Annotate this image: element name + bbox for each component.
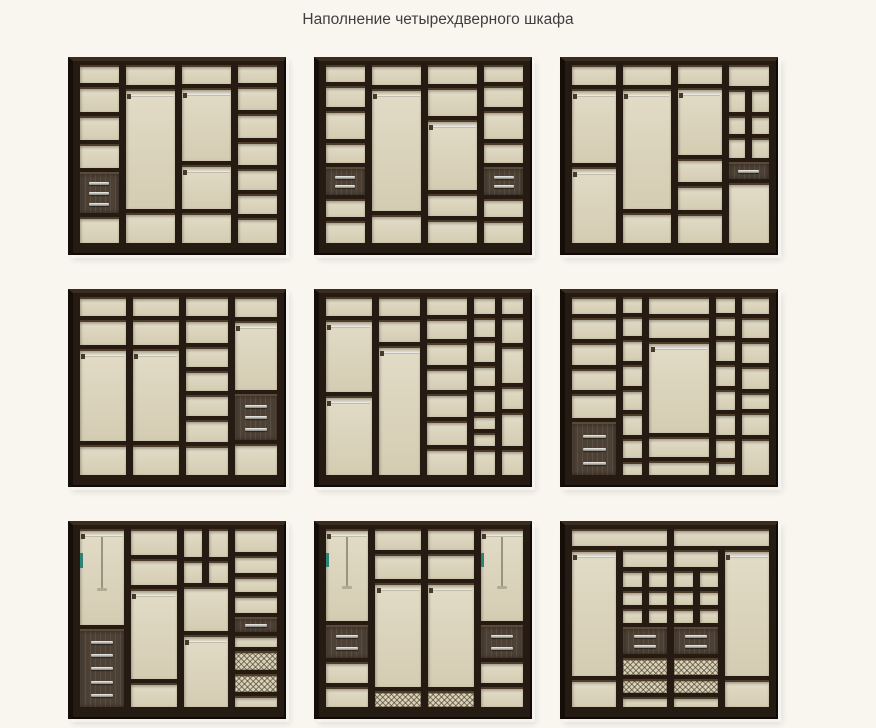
compartment-hanging [678,90,722,155]
wardrobe-sections [326,531,523,707]
wire-basket-shelf [623,681,667,693]
shelf-row [326,67,365,82]
compartment-shelf [678,67,722,84]
compartment-shelf [729,118,746,134]
compartment-shelf [623,215,671,243]
compartment-shelf [326,67,365,82]
compartment-shelf [742,320,769,338]
compartment-shelf [716,367,735,386]
compartment-shelf [427,371,467,391]
drawer-handle-icon [494,185,514,188]
shelf-row [186,397,228,417]
shelf-row [481,664,523,682]
compartment-shelf [474,320,495,337]
compartment-shelf [428,196,477,216]
shelf-row [729,118,769,134]
compartment-shelf [427,396,467,417]
shelf-row [235,676,277,692]
compartment-shelf [326,201,365,218]
shelf-row [729,185,769,243]
shelf-row [729,67,769,86]
compartment-shelf [379,299,421,316]
shelf-row [623,573,667,587]
compartment-shelf [729,140,746,158]
hanging-rod-icon [429,126,475,128]
wardrobe-column [729,67,769,243]
compartment-shelf [238,196,277,215]
shelf-row [649,299,709,314]
compartment-shelf [427,451,467,475]
shelf-row [474,343,495,361]
shelf-row [326,223,365,243]
shelf-row [623,299,642,313]
shelf-row [502,452,523,475]
shelf-row [238,67,277,83]
compartment-shelf [481,689,523,707]
shelf-row [474,392,495,412]
wardrobe-column [572,299,616,475]
compartment-shelf [131,685,177,707]
compartment-hanging [326,398,372,475]
hanging-rod-icon [573,173,614,175]
wardrobe-column [428,531,474,707]
shelf-row [623,681,667,693]
shelf-row [716,299,735,313]
shelf-row [235,698,277,707]
shelf-row [649,463,709,475]
compartment-shelf [428,531,474,550]
wardrobe-layout-8 [314,521,532,719]
hanging-rod-icon [327,326,370,328]
shelf-row [326,627,368,659]
compartment-shelf [238,220,277,243]
compartment-shelf [209,563,228,582]
shelf-row [184,637,228,707]
compartment-shelf [742,415,769,435]
compartment-shelf [372,217,421,243]
compartment-shelf [379,322,421,342]
shelf-row [742,441,769,475]
compartment-shelf [326,88,365,106]
compartment-shelf [572,682,616,707]
shelf-row [80,322,126,344]
drawer-handle-icon [245,405,267,408]
wardrobe-column [678,67,722,243]
shelf-row [623,593,667,605]
compartment-shelf [649,463,709,475]
wardrobe-sections [80,67,277,243]
shelf-row [126,215,175,243]
shelf-row [572,682,616,707]
compartment-shelf [729,67,769,86]
wardrobe-column [379,299,421,475]
compartment-hanging [184,637,228,707]
wardrobe-column [131,531,177,707]
compartment-shelf [484,88,523,106]
compartment-shelf [484,223,523,243]
shelf-row [184,589,228,631]
compartment-shelf [474,299,495,314]
compartment-shelf [235,598,277,613]
compartment-shelf [623,319,642,336]
wardrobe-column [649,299,709,475]
shelf-row [131,591,177,679]
shelf-row [372,91,421,211]
wardrobe-layout-9 [560,521,778,719]
hanging-rod-icon [380,352,419,354]
compartment-shelf [623,573,642,587]
wardrobe-column [716,299,735,475]
wire-basket-shelf [674,681,718,693]
drawer-handle-icon [583,448,606,451]
compartment-shelf [80,299,126,316]
shelf-row [186,448,228,475]
compartment-shelf [238,89,277,110]
shelf-row [742,415,769,435]
shelf-row [186,373,228,391]
shelf-row [725,682,769,707]
compartment-shelf [623,392,642,411]
shelf-row [474,435,495,446]
hanging-rod-icon [183,94,229,96]
shelf-row [133,351,179,441]
shelf-row [678,90,722,155]
wardrobe-column [481,531,523,707]
wardrobe-sections [80,299,277,475]
drawer-handle-icon [245,624,267,627]
shelf-row [80,67,119,83]
compartment-hanging [372,91,421,211]
compartment-shelf [474,343,495,361]
compartment-shelf [502,349,523,383]
compartment-shelf [427,299,467,315]
hanging-rod-icon [185,641,226,643]
shelf-row [372,217,421,243]
shelf-row [649,320,709,338]
wardrobe-column [326,299,372,475]
shelf-row [80,631,124,708]
shelf-row [186,322,228,343]
compartment-shelf [623,611,642,623]
shelf-row [235,638,277,647]
compartment-shelf [623,699,667,707]
shelf-row [428,67,477,84]
shelf-row [572,371,616,390]
compartment-shelf [674,552,718,567]
drawer-unit [481,627,523,659]
shelf-row [326,145,365,163]
shelf-row [182,167,231,208]
drawer-unit [326,169,365,194]
wardrobe-layout-7 [68,521,286,719]
compartment-hanging [428,122,477,190]
shelf-row [742,320,769,338]
drawer-handle-icon [91,654,114,657]
compartment-shelf [502,415,523,446]
compartment-shelf [182,215,231,243]
drawer-handle-icon [91,641,114,644]
compartment-shelf [716,342,735,361]
shelf-row [678,161,722,182]
shelf-row [427,345,467,365]
shelf-row [428,90,477,116]
shelf-row [742,369,769,389]
shelf-row [326,398,372,475]
compartment-shelf [126,215,175,243]
shelf-row [428,556,474,579]
compartment-shelf [623,367,642,386]
compartment-shelf [623,593,642,605]
shelf-row [674,611,718,623]
hanging-rod-icon [132,595,175,597]
shelf-row [80,531,124,625]
shelf-row [80,219,119,243]
shelf-row [484,145,523,163]
shelf-row [742,395,769,410]
wardrobe-column [502,299,523,475]
compartment-shelf [474,368,495,386]
compartment-shelf [80,322,126,344]
shelf-row [742,299,769,314]
shelf-row [375,556,421,579]
compartment-shelf [133,447,179,475]
wardrobe-column [428,67,477,243]
compartment-hanging [80,351,126,441]
drawer-handle-icon [245,428,267,431]
compartment-shelf [729,185,769,243]
shelf-row [235,396,277,441]
compartment-hanging [572,169,616,243]
drawer-handle-icon [336,635,358,638]
wardrobe-column [184,531,228,707]
compartment-hanging [379,348,421,475]
wardrobe-column [742,299,769,475]
compartment-shelf [427,345,467,365]
drawer-handle-icon [685,635,708,638]
shelf-row [572,169,616,243]
compartment-shelf [674,531,769,546]
compartment-shelf [502,389,523,409]
hanging-rod-icon [429,589,472,591]
compartment-hanging [623,91,671,209]
shelf-row [133,299,179,316]
compartment-shelf [700,611,719,623]
drawer-handle-icon [494,176,514,179]
drawer-handle-icon [91,694,114,697]
drawer-handle-icon [89,182,109,185]
drawer-handle-icon [583,462,606,465]
compartment-shelf [80,447,126,475]
drawer-handle-icon [583,435,606,438]
compartment-hanging [326,322,372,392]
drawer-handle-icon [335,185,355,188]
wardrobe-sections [326,67,523,243]
shelf-row [235,653,277,669]
wardrobe-column [623,552,667,707]
compartment-shelf [326,223,365,243]
shelf-row [678,67,722,84]
compartment-shelf [572,531,667,546]
shelf-row [182,67,231,84]
wire-basket-shelf [235,653,277,669]
compartment-shelf [427,423,467,444]
compartment-shelf [678,161,722,182]
drawer-handle-icon [91,681,114,684]
shelf-row [623,441,642,458]
hook-accent-icon [326,553,329,567]
shelf-row [474,299,495,314]
compartment-shelf [623,441,642,458]
pantograph-rod-icon [501,537,503,586]
wire-basket-shelf [235,676,277,692]
compartment-shelf [716,464,735,475]
shelf-row [131,531,177,555]
compartment-shelf [235,531,277,552]
hanging-rod-icon [624,95,669,97]
shelf-row [572,552,616,676]
shelf-row [623,67,671,85]
wardrobe-column [80,67,119,243]
wardrobe-column [186,299,228,475]
compartment-shelf [752,140,769,158]
drawer-unit [326,627,368,659]
shelf-row [80,351,126,441]
drawer-handle-icon [738,170,759,173]
hanging-rod-icon [134,355,177,357]
compartment-shelf [131,561,177,585]
shelf-row [80,118,119,140]
compartment-shelf [186,448,228,475]
compartment-shelf [725,682,769,707]
shelf-row [484,67,523,82]
compartment-shelf [184,589,228,631]
shelf-row [238,89,277,110]
hanging-rod-icon [726,556,767,558]
compartment-shelf [623,416,642,435]
wardrobe-sections [572,299,769,475]
shelf-row [623,552,667,567]
shelf-row [326,664,368,682]
compartment-shelf [428,67,477,84]
compartment-hanging [428,585,474,687]
compartment-shelf [428,222,477,243]
hanging-rod-icon [127,95,173,97]
wire-basket-shelf [428,693,474,707]
drawer-unit [729,164,769,179]
wardrobe-column [80,299,126,475]
shelf-row [572,345,616,365]
compartment-shelf [674,611,693,623]
wardrobe-layout-1 [68,57,286,255]
compartment-shelf [235,558,277,573]
compartment-shelf [80,67,119,83]
wardrobe-layout-5 [314,289,532,487]
shelf-row [80,299,126,316]
shelf-row [184,531,228,557]
shelf-row [131,561,177,585]
drawer-handle-icon [634,635,657,638]
shelf-row [238,116,277,137]
compartment-shelf [678,216,722,243]
shelf-row [372,67,421,85]
shelf-row [623,699,667,707]
compartment-shelf [186,422,228,442]
shelf-row [484,223,523,243]
shelf-row [182,215,231,243]
drawer-unit [674,629,718,655]
drawer-handle-icon [491,635,513,638]
shelf-row [428,222,477,243]
compartment-shelf [235,579,277,592]
wardrobe-column [372,67,421,243]
wardrobe-column [484,67,523,243]
compartment-shelf [742,344,769,364]
wardrobe-column [427,299,467,475]
compartment-shelf [238,144,277,165]
compartment-shelf [80,219,119,243]
shelf-row [235,531,277,552]
compartment-shelf [572,345,616,365]
compartment-shelf [502,452,523,475]
shelf-row [649,344,709,433]
compartment-shelf [235,638,277,647]
shelf-row [572,531,769,546]
compartment-shelf [126,67,175,85]
shelf-row [375,693,421,707]
compartment-pantograph [80,531,124,625]
drawer-handle-icon [685,645,708,648]
drawer-handle-icon [245,416,267,419]
wardrobe-column [623,67,671,243]
hanging-rod-icon [183,171,229,173]
hanging-rod-icon [573,556,614,558]
compartment-shelf [326,664,368,682]
compartment-shelf [186,397,228,417]
shelf-row [502,320,523,343]
hanging-rod-icon [327,402,370,404]
shelf-row [623,91,671,209]
compartment-shelf [372,67,421,85]
compartment-shelf [752,92,769,112]
shelf-row [481,531,523,621]
compartment-hanging [725,552,769,676]
compartment-shelf [186,322,228,343]
shelf-row [623,215,671,243]
compartment-shelf [375,556,421,579]
compartment-shelf [623,299,642,313]
hanging-rod-icon [373,95,419,97]
shelf-row [235,323,277,390]
shelf-row [729,164,769,179]
compartment-shelf [572,396,616,418]
wardrobe-grid [0,30,876,719]
compartment-shelf [649,611,668,623]
shelf-row [326,88,365,106]
shelf-row [126,91,175,209]
compartment-shelf [674,593,693,605]
wardrobe-column [572,67,616,243]
shelf-row [182,90,231,161]
shelf-row [238,171,277,190]
compartment-shelf [184,563,203,582]
shelf-row [184,563,228,582]
shelf-row [502,349,523,383]
compartment-shelf [326,113,365,140]
wardrobe-layout-4 [68,289,286,487]
compartment-shelf [428,556,474,579]
compartment-shelf [742,299,769,314]
compartment-shelf [572,67,616,85]
